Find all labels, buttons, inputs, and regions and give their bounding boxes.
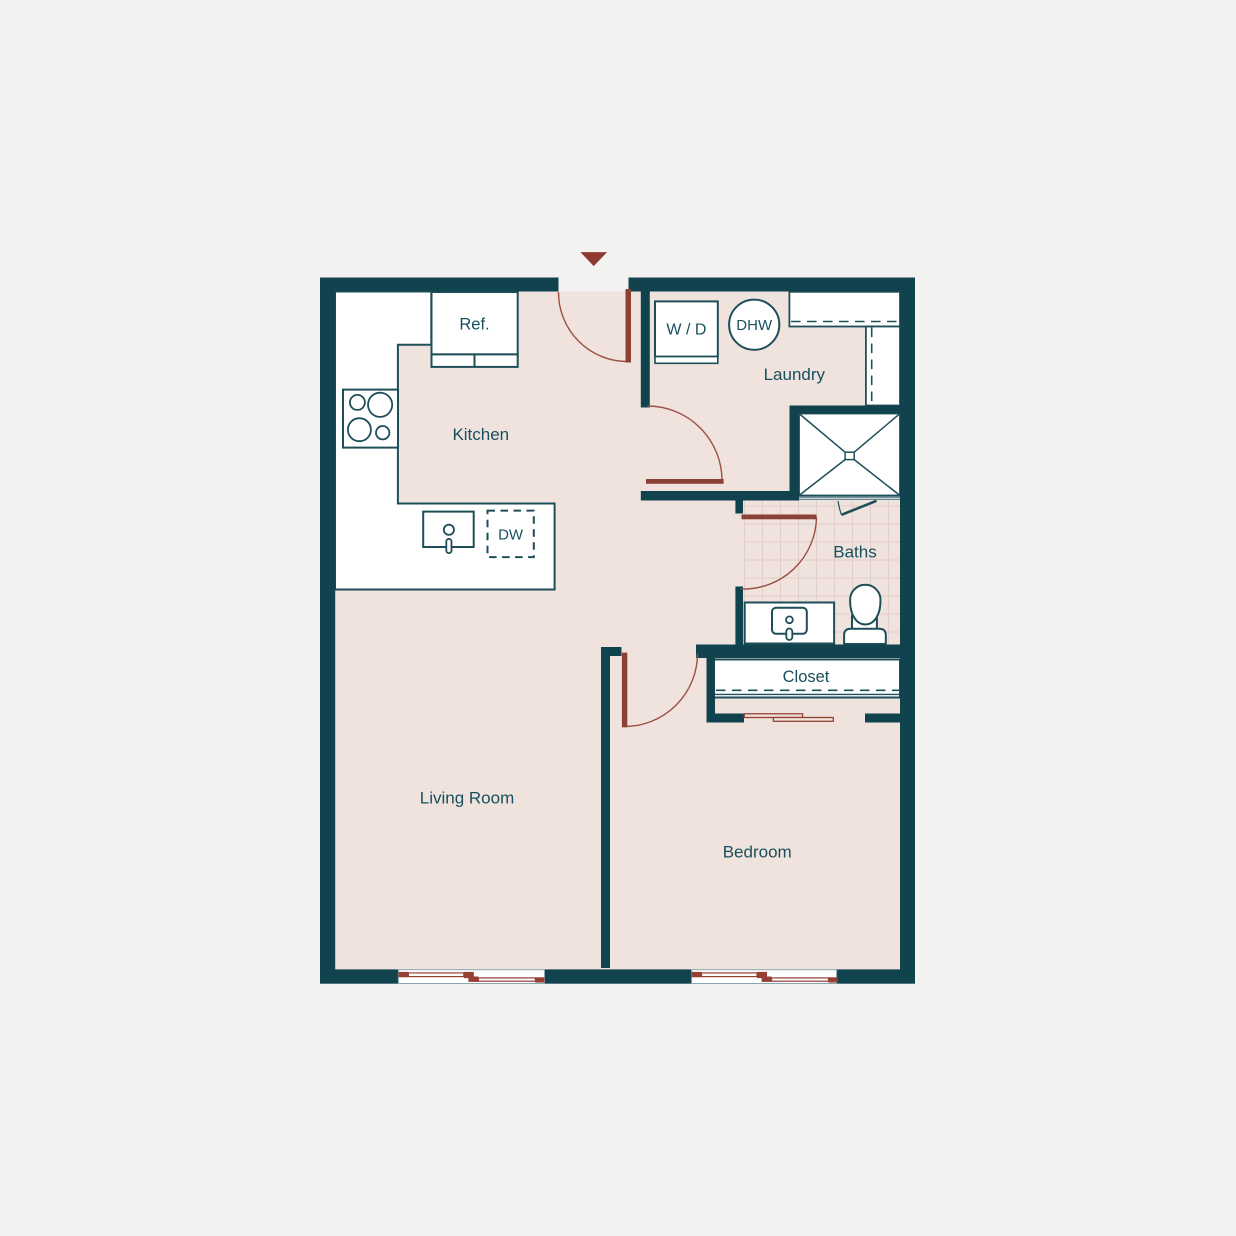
- svg-text:Kitchen: Kitchen: [452, 425, 509, 444]
- svg-text:Laundry: Laundry: [764, 365, 826, 384]
- svg-text:Ref.: Ref.: [459, 316, 489, 334]
- svg-text:DHW: DHW: [736, 317, 773, 334]
- svg-text:W / D: W / D: [666, 322, 706, 339]
- svg-text:DW: DW: [498, 527, 524, 544]
- svg-text:Bedroom: Bedroom: [723, 843, 792, 862]
- svg-text:Baths: Baths: [833, 543, 876, 562]
- svg-text:Living Room: Living Room: [420, 789, 515, 808]
- svg-text:Closet: Closet: [783, 668, 830, 686]
